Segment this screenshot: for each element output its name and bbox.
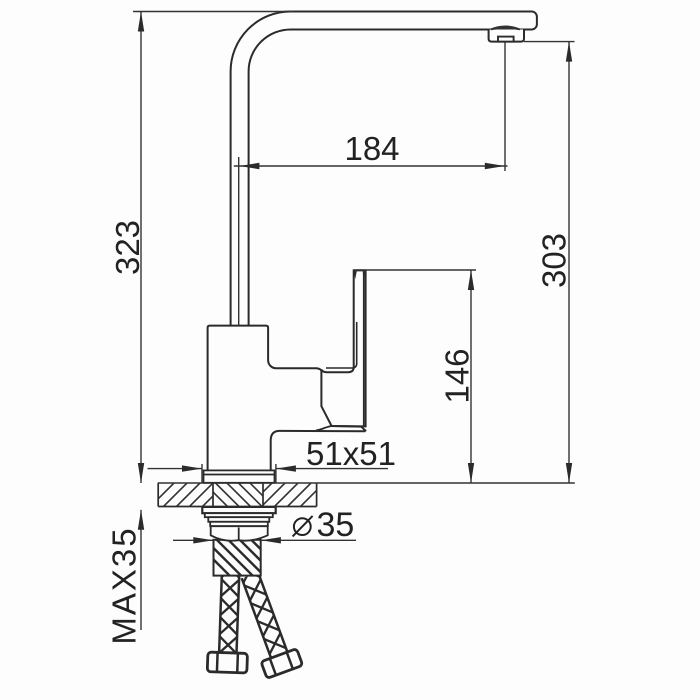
svg-text:184: 184 bbox=[344, 130, 399, 167]
svg-text:51x51: 51x51 bbox=[306, 435, 396, 472]
svg-text:146: 146 bbox=[439, 348, 476, 403]
svg-text:35: 35 bbox=[317, 506, 355, 544]
svg-text:303: 303 bbox=[536, 233, 573, 288]
svg-text:MAX35: MAX35 bbox=[106, 526, 143, 644]
svg-text:323: 323 bbox=[109, 220, 146, 275]
